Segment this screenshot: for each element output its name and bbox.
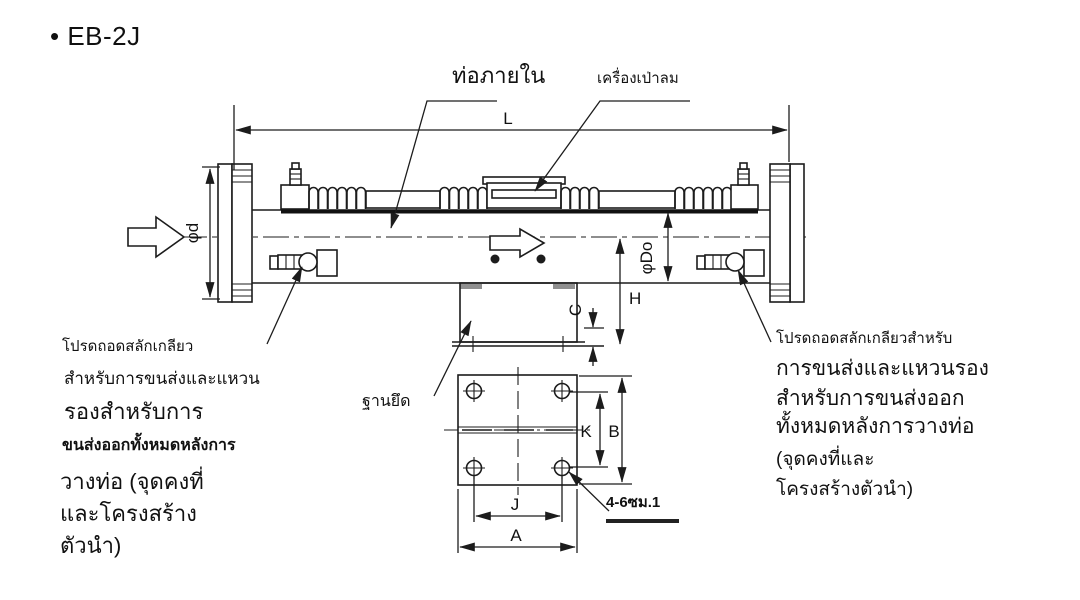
label-blower: เครื่องเป่าลม <box>597 70 679 89</box>
bolt-hole <box>463 457 485 479</box>
dim-label-J: J <box>511 495 520 514</box>
bolt-hole <box>551 380 573 402</box>
dim-label-C: C <box>566 304 585 316</box>
bolt-hole <box>551 457 573 479</box>
flow-direction-arrow-icon <box>490 229 544 257</box>
left-note-line-1: โปรดถอดสลักเกลียว <box>62 338 193 357</box>
base-plate-view: B K J A <box>444 367 632 553</box>
dim-L: L <box>234 105 789 170</box>
label-mount-base: ฐานยึด <box>362 392 411 412</box>
dim-phi-Do: φDo <box>637 213 668 281</box>
left-note-line-4: ขนส่งออกทั้งหมดหลังการ <box>62 436 236 456</box>
right-note-line-6: โครงสร้างตัวนำ) <box>776 478 913 502</box>
bellows-convolutions-1 <box>309 188 366 210</box>
left-note-line-5: วางท่อ (จุดคงที่ <box>60 468 204 496</box>
page-title: • EB-2J <box>50 20 141 53</box>
left-note-line-7: ตัวนำ) <box>60 532 121 560</box>
dim-label-phi-d: φd <box>183 223 202 243</box>
shipping-bolt-right <box>697 250 764 276</box>
flange-right <box>770 164 804 302</box>
bolt-hole <box>463 380 485 402</box>
bellows-assembly <box>281 163 758 209</box>
mount-bracket <box>452 283 604 352</box>
cover-plate-1 <box>366 191 440 208</box>
leader-right-bolt <box>738 270 771 342</box>
right-note-line-3: สำหรับการขนส่งออก <box>776 386 965 412</box>
leader-left-bolt <box>267 267 302 344</box>
flow-arrow-icon <box>128 217 184 257</box>
title-bullet: • <box>50 21 60 51</box>
right-note-line-5: (จุดคงที่และ <box>776 448 874 472</box>
leader-inner-pipe <box>391 101 497 228</box>
shipping-bolt-left <box>270 250 337 276</box>
dim-label-H: H <box>629 289 641 308</box>
dim-label-K: K <box>580 422 592 441</box>
left-note-line-2: สำหรับการขนส่งและแหวน <box>64 368 260 389</box>
cover-plate-2 <box>599 191 675 208</box>
left-note-line-3: รองสำหรับการ <box>64 398 203 426</box>
dim-J: J <box>474 476 562 522</box>
dim-label-phi-Do: φDo <box>637 242 656 275</box>
dim-label-L: L <box>503 109 512 128</box>
left-note-line-6: และโครงสร้าง <box>60 500 197 528</box>
label-hole-callout: 4-6ซม.1 <box>606 494 660 513</box>
bellows-convolutions-4 <box>675 188 732 210</box>
weld-dot <box>537 255 546 264</box>
leader-mount-base <box>434 321 471 396</box>
dim-C: C <box>566 304 604 366</box>
right-note-line-1: โปรดถอดสลักเกลียวสำหรับ <box>776 330 952 349</box>
dim-label-A: A <box>510 526 522 545</box>
right-note-line-4: ทั้งหมดหลังการวางท่อ <box>776 414 974 440</box>
dim-phi-d: φd <box>183 167 220 299</box>
dim-label-B: B <box>608 422 619 441</box>
bolt-left-icon <box>290 169 301 185</box>
label-inner-pipe: ท่อภายใน <box>452 62 545 90</box>
bellows-convolutions-3 <box>561 188 599 210</box>
flange-left <box>218 164 252 302</box>
weld-dot <box>491 255 500 264</box>
bellows-convolutions-2 <box>440 188 487 210</box>
diagram-canvas: L φd φDo H C <box>0 0 1080 600</box>
bolt-right-icon <box>738 169 749 185</box>
leader-hole-callout <box>569 472 609 511</box>
title-text: EB-2J <box>67 21 140 51</box>
right-note-line-2: การขนส่งและแหวนรอง <box>776 356 989 382</box>
